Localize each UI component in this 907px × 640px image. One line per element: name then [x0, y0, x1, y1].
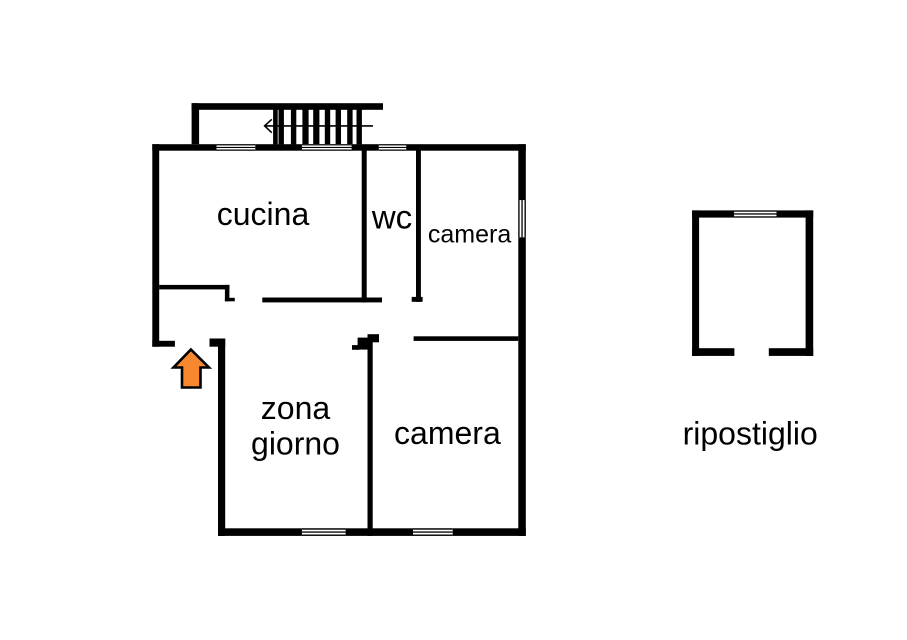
- svg-text:cucina: cucina: [217, 196, 310, 232]
- svg-text:camera: camera: [394, 415, 501, 451]
- svg-text:ripostiglio: ripostiglio: [683, 415, 818, 451]
- svg-text:wc: wc: [371, 199, 412, 236]
- svg-text:zona: zona: [261, 390, 331, 426]
- svg-text:giorno: giorno: [251, 426, 340, 462]
- svg-text:camera: camera: [428, 220, 511, 248]
